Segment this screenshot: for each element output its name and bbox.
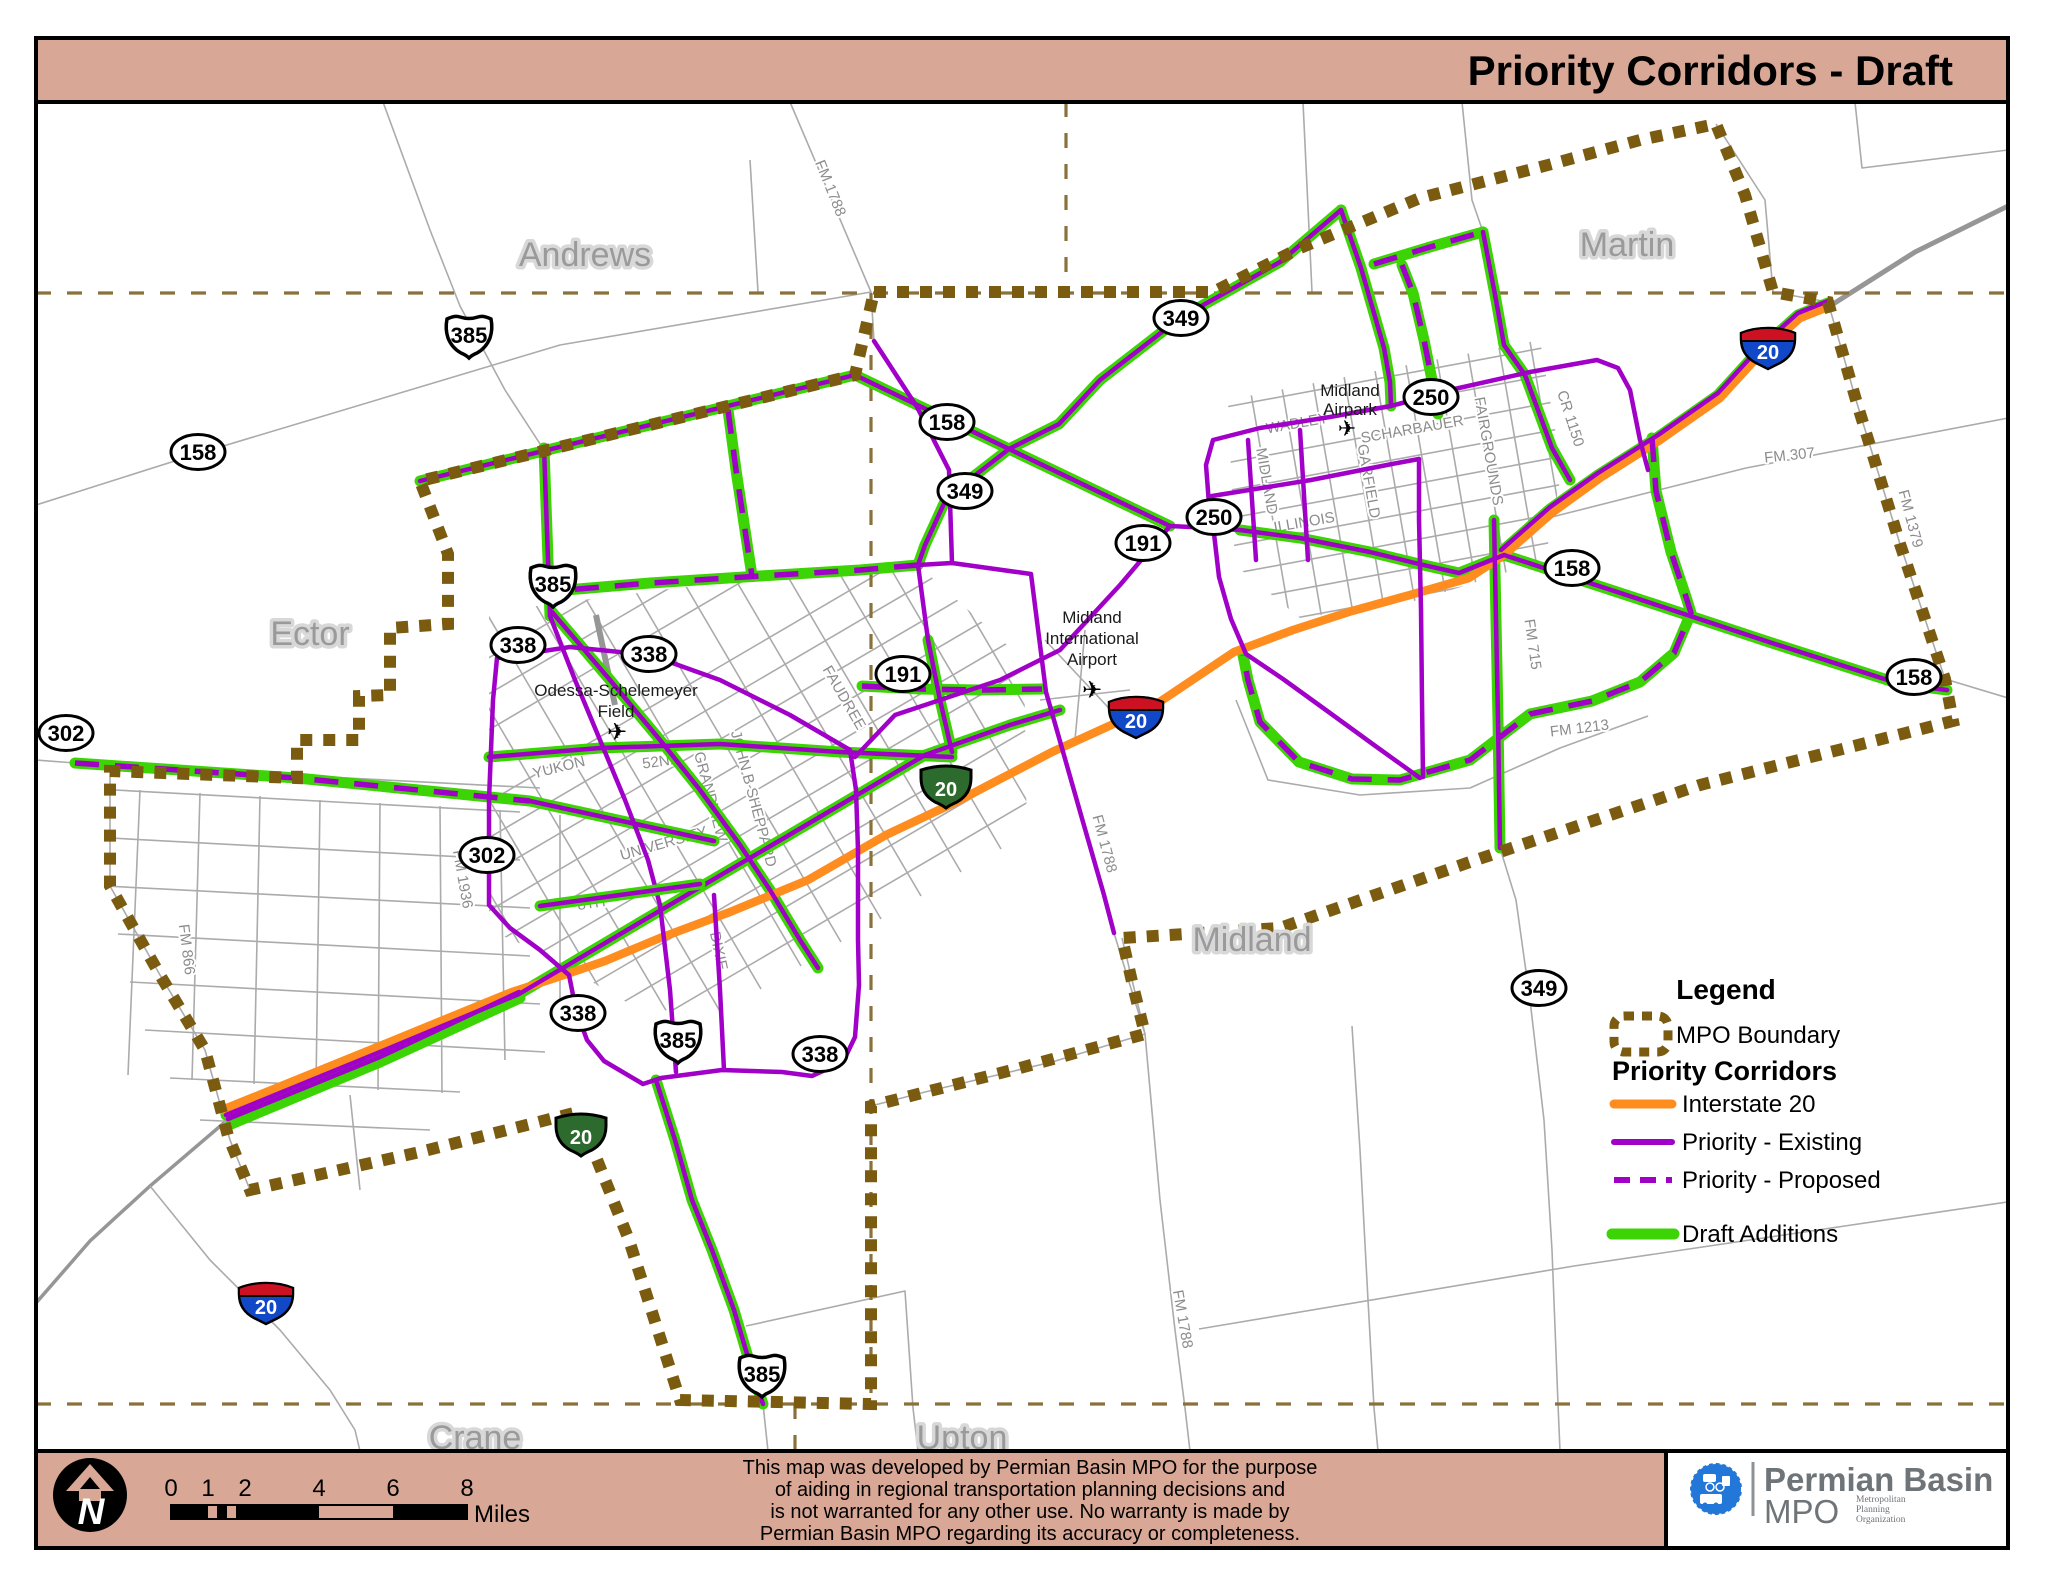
- svg-text:Midland: Midland: [1062, 608, 1122, 627]
- svg-text:International: International: [1045, 629, 1139, 648]
- svg-text:This map was developed by Perm: This map was developed by Permian Basin …: [743, 1457, 1318, 1479]
- svg-text:338: 338: [560, 1001, 597, 1026]
- svg-text:MPO Boundary: MPO Boundary: [1676, 1022, 1840, 1049]
- svg-text:158: 158: [1554, 556, 1591, 581]
- svg-text:158: 158: [929, 410, 966, 435]
- svg-text:Midland: Midland: [1320, 381, 1380, 400]
- svg-text:MPO: MPO: [1764, 1493, 1839, 1530]
- svg-text:Interstate 20: Interstate 20: [1682, 1091, 1815, 1118]
- svg-text:385: 385: [660, 1028, 697, 1053]
- svg-text:302: 302: [48, 721, 85, 746]
- svg-text:349: 349: [1521, 976, 1558, 1001]
- svg-text:Legend: Legend: [1676, 974, 1776, 1005]
- svg-text:8: 8: [460, 1475, 473, 1502]
- svg-text:1: 1: [201, 1475, 214, 1502]
- svg-text:20: 20: [1125, 711, 1147, 733]
- svg-text:338: 338: [802, 1042, 839, 1067]
- svg-text:Priority - Proposed: Priority - Proposed: [1682, 1167, 1881, 1194]
- svg-text:158: 158: [1896, 665, 1933, 690]
- svg-text:Miles: Miles: [474, 1501, 530, 1528]
- svg-text:Airport: Airport: [1067, 650, 1117, 669]
- svg-text:Metropolitan: Metropolitan: [1856, 1495, 1906, 1505]
- svg-text:250: 250: [1413, 385, 1450, 410]
- svg-text:250: 250: [1196, 505, 1233, 530]
- svg-text:20: 20: [570, 1127, 592, 1149]
- svg-text:20: 20: [255, 1297, 277, 1319]
- svg-text:Martin: Martin: [1580, 226, 1674, 264]
- svg-text:Odessa-Schelemeyer: Odessa-Schelemeyer: [534, 681, 698, 700]
- svg-text:20: 20: [935, 779, 957, 801]
- svg-text:0: 0: [164, 1475, 177, 1502]
- svg-text:349: 349: [1163, 306, 1200, 331]
- svg-text:✈: ✈: [1082, 677, 1102, 704]
- svg-text:of aiding in regional transpor: of aiding in regional transportation pla…: [775, 1479, 1285, 1501]
- svg-text:Organization: Organization: [1856, 1515, 1906, 1525]
- svg-text:Midland: Midland: [1192, 921, 1311, 959]
- svg-text:N: N: [78, 1491, 106, 1532]
- svg-text:191: 191: [1125, 531, 1162, 556]
- svg-text:385: 385: [535, 572, 572, 597]
- svg-text:is not warranted for any other: is not warranted for any other use. No w…: [770, 1501, 1289, 1523]
- svg-text:Ector: Ector: [270, 615, 349, 653]
- svg-text:338: 338: [500, 633, 537, 658]
- svg-text:191: 191: [885, 662, 922, 687]
- svg-text:158: 158: [180, 440, 217, 465]
- svg-text:Andrews: Andrews: [519, 236, 651, 274]
- svg-text:Permian Basin MPO regarding it: Permian Basin MPO regarding its accuracy…: [760, 1523, 1300, 1545]
- svg-text:✈: ✈: [607, 719, 627, 746]
- svg-text:Priority - Existing: Priority - Existing: [1682, 1129, 1862, 1156]
- svg-text:385: 385: [451, 323, 488, 348]
- svg-text:Priority Corridors - Draft: Priority Corridors - Draft: [1468, 47, 1953, 94]
- svg-text:4: 4: [312, 1475, 325, 1502]
- svg-text:338: 338: [631, 642, 668, 667]
- svg-text:✈: ✈: [1338, 416, 1356, 441]
- svg-text:6: 6: [386, 1475, 399, 1502]
- svg-text:Draft Additions: Draft Additions: [1682, 1221, 1838, 1248]
- svg-text:Priority Corridors: Priority Corridors: [1612, 1056, 1837, 1086]
- svg-text:2: 2: [238, 1475, 251, 1502]
- svg-text:385: 385: [744, 1362, 781, 1387]
- svg-text:349: 349: [947, 479, 984, 504]
- svg-text:302: 302: [469, 843, 506, 868]
- svg-text:Planning: Planning: [1856, 1505, 1890, 1515]
- svg-text:20: 20: [1757, 342, 1779, 364]
